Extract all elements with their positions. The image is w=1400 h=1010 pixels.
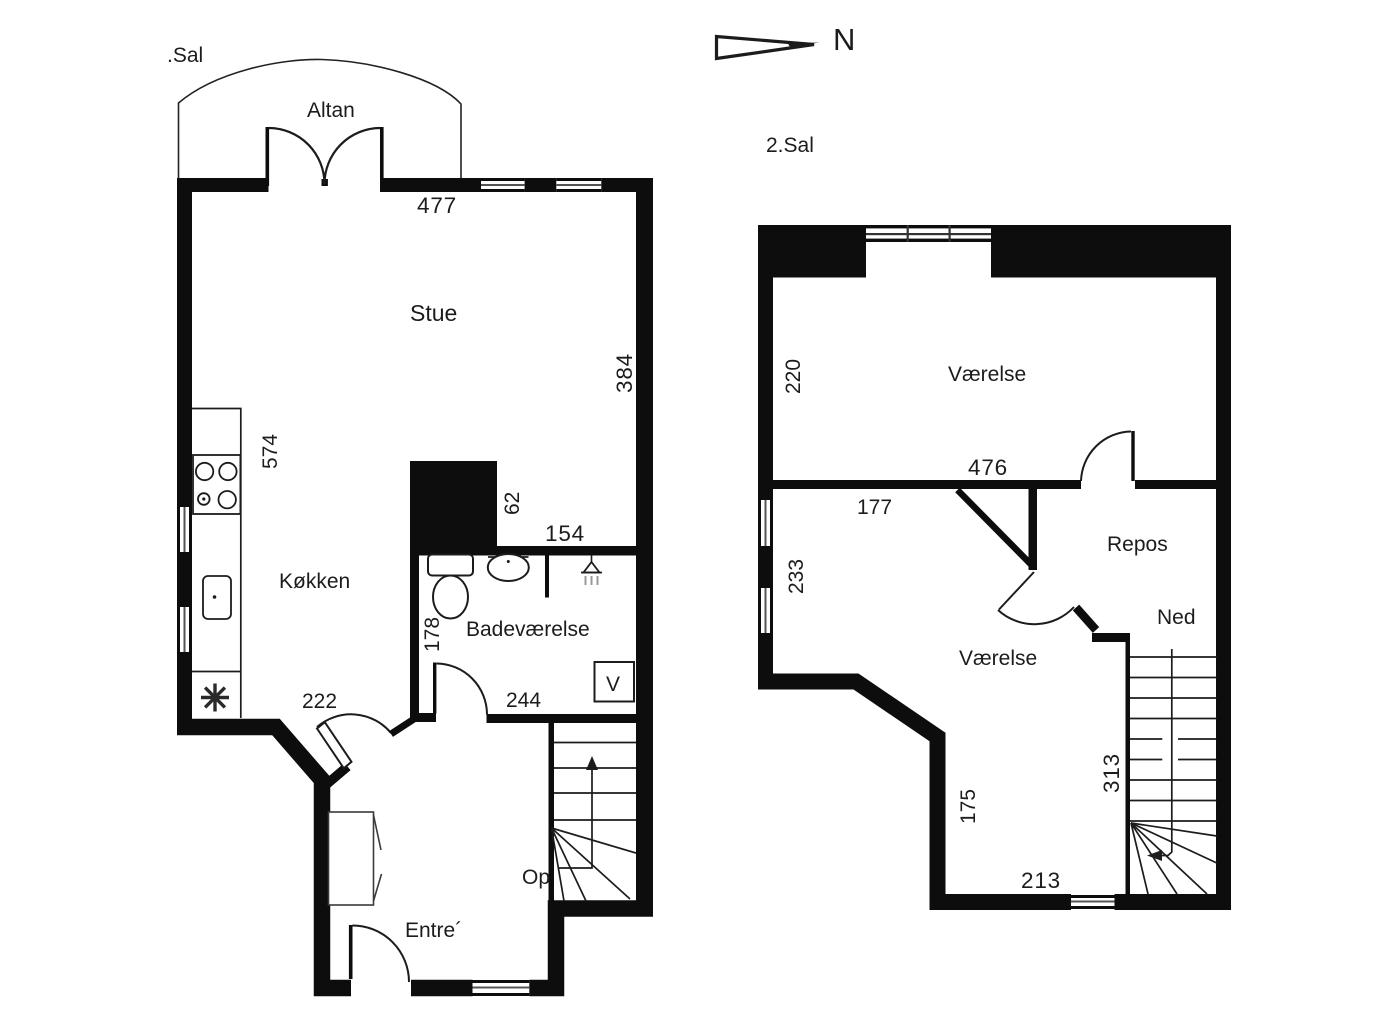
svg-text:222: 222 [302, 690, 337, 713]
svg-text:213: 213 [1021, 868, 1061, 893]
svg-text:Stue: Stue [410, 300, 457, 326]
svg-text:V: V [606, 673, 620, 696]
svg-text:220: 220 [782, 359, 805, 394]
svg-text:233: 233 [785, 559, 808, 594]
svg-text:476: 476 [968, 455, 1008, 480]
svg-text:477: 477 [417, 193, 457, 218]
svg-text:Altan: Altan [307, 99, 355, 122]
svg-text:574: 574 [259, 434, 282, 469]
svg-text:313: 313 [1099, 753, 1124, 793]
svg-text:Værelse: Værelse [948, 363, 1026, 386]
svg-text:175: 175 [957, 789, 980, 824]
svg-text:Badeværelse: Badeværelse [466, 618, 590, 641]
svg-text:62: 62 [501, 492, 524, 515]
svg-text:244: 244 [506, 689, 541, 712]
svg-text:Ned: Ned [1157, 606, 1196, 629]
svg-text:Repos: Repos [1107, 533, 1168, 556]
svg-text:N: N [833, 22, 855, 57]
svg-text:Køkken: Køkken [279, 570, 350, 593]
svg-text:154: 154 [545, 521, 585, 546]
svg-text:.Sal: .Sal [167, 44, 203, 67]
svg-text:Værelse: Værelse [959, 647, 1037, 670]
svg-text:2.Sal: 2.Sal [766, 134, 814, 157]
svg-text:Op: Op [522, 866, 550, 889]
svg-text:177: 177 [857, 496, 892, 519]
svg-text:384: 384 [612, 353, 637, 393]
svg-text:178: 178 [421, 617, 444, 652]
svg-text:Entre´: Entre´ [405, 919, 462, 942]
